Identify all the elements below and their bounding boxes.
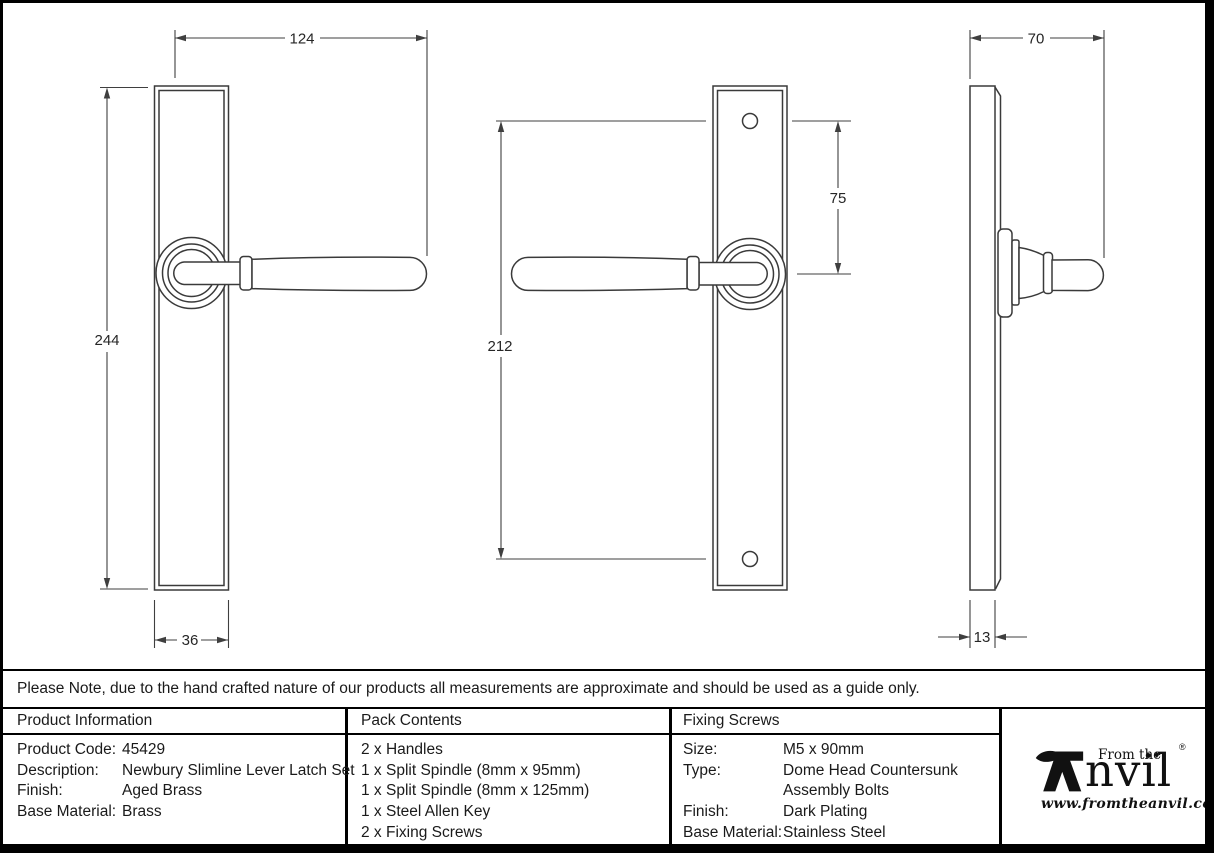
backplate-bevel-line [995, 87, 1001, 589]
row-label: Finish: [17, 781, 122, 802]
column-divider [669, 707, 672, 845]
page-border-left [0, 0, 3, 853]
row-value: 45429 [122, 740, 165, 761]
table-row: Base Material: Stainless Steel [683, 823, 958, 844]
brand-logo: From the ♦ ® nvil www.fromtheanvil.co.uk [1002, 709, 1205, 844]
dim-projection-label: 70 [1028, 31, 1045, 48]
backplate-side-outline [970, 86, 995, 590]
table-row: Type: Dome Head Countersunk [683, 761, 958, 782]
product-information-header: Product Information [17, 712, 152, 730]
note-text: Please Note, due to the hand crafted nat… [17, 680, 920, 698]
table-row: Product Code: 45429 [17, 740, 355, 761]
row-value: Aged Brass [122, 781, 202, 802]
dim-plate-width-label: 36 [182, 632, 199, 649]
dim-plate-thickness-label: 13 [974, 629, 991, 646]
anvil-logo-icon [1033, 745, 1085, 797]
row-value: M5 x 90mm [783, 740, 864, 761]
table-row: Assembly Bolts [683, 781, 958, 802]
dim-overall-width-label: 124 [289, 31, 314, 48]
lever-collar [240, 257, 252, 291]
row-label: Base Material: [683, 823, 783, 844]
row-label: Base Material: [17, 802, 122, 823]
list-item: 2 x Handles [361, 740, 589, 761]
list-item: 2 x Fixing Screws [361, 823, 589, 844]
row-label: Finish: [683, 802, 783, 823]
product-information-column: Product Code: 45429 Description: Newbury… [17, 740, 355, 823]
row-label: Description: [17, 761, 122, 782]
page-border-bottom [0, 844, 1214, 853]
lever-cone-profile [1019, 248, 1044, 299]
row-value: Brass [122, 802, 162, 823]
handle-side-view: 70 13 [938, 30, 1104, 648]
row-label: Product Code: [17, 740, 122, 761]
dim-plate-height-label: 244 [94, 332, 119, 349]
row-value: Dome Head Countersunk [783, 761, 958, 782]
dim-screw-centres-label: 212 [487, 338, 512, 355]
row-label: Type: [683, 761, 783, 782]
lever-collar-profile [1044, 253, 1053, 294]
page-border-top [0, 0, 1214, 3]
handle-reverse-view: 212 75 [487, 86, 851, 590]
lever-collar [687, 257, 699, 291]
rose-step-profile [1012, 240, 1019, 305]
product-spec-sheet: 124 244 36 2 [0, 0, 1214, 853]
brand-url: www.fromtheanvil.co.uk [1041, 796, 1214, 812]
lever-grip [512, 257, 688, 290]
row-label: Size: [683, 740, 783, 761]
fixing-screws-column: Size: M5 x 90mm Type: Dome Head Counters… [683, 740, 958, 843]
table-row: Finish: Dark Plating [683, 802, 958, 823]
lever-grip-profile [1052, 260, 1103, 291]
table-row: Finish: Aged Brass [17, 781, 355, 802]
rose-base-profile [998, 229, 1012, 317]
table-row: Base Material: Brass [17, 802, 355, 823]
row-value: Dark Plating [783, 802, 867, 823]
screw-hole-top [743, 114, 758, 129]
technical-drawing: 124 244 36 2 [0, 0, 1214, 669]
row-value: Assembly Bolts [783, 781, 889, 802]
lever-grip [252, 257, 427, 290]
fixing-screws-header: Fixing Screws [683, 712, 779, 730]
list-item: 1 x Split Spindle (8mm x 125mm) [361, 781, 589, 802]
list-item: 1 x Steel Allen Key [361, 802, 589, 823]
pack-contents-column: 2 x Handles 1 x Split Spindle (8mm x 95m… [361, 740, 589, 843]
row-label [683, 781, 783, 802]
note-row: Please Note, due to the hand crafted nat… [0, 669, 1214, 709]
lever-neck [174, 262, 242, 285]
dim-top-to-handle-label: 75 [830, 190, 847, 207]
header-underline [0, 733, 1002, 735]
brand-name-text: nvil [1085, 748, 1172, 793]
table-row: Description: Newbury Slimline Lever Latc… [17, 761, 355, 782]
row-value: Stainless Steel [783, 823, 886, 844]
backplate-inner-line [159, 91, 224, 586]
handle-front-view: 124 244 36 [94, 30, 427, 649]
row-value: Newbury Slimline Lever Latch Set [122, 761, 355, 782]
lever-neck [699, 263, 767, 286]
backplate-outline [713, 86, 787, 590]
page-border-right [1205, 0, 1214, 853]
table-row: Size: M5 x 90mm [683, 740, 958, 761]
registered-trademark-icon: ® [1179, 742, 1186, 752]
backplate-outline [155, 86, 229, 590]
screw-hole-bottom [743, 552, 758, 567]
list-item: 1 x Split Spindle (8mm x 95mm) [361, 761, 589, 782]
pack-contents-header: Pack Contents [361, 712, 462, 730]
backplate-inner-line [718, 91, 783, 586]
